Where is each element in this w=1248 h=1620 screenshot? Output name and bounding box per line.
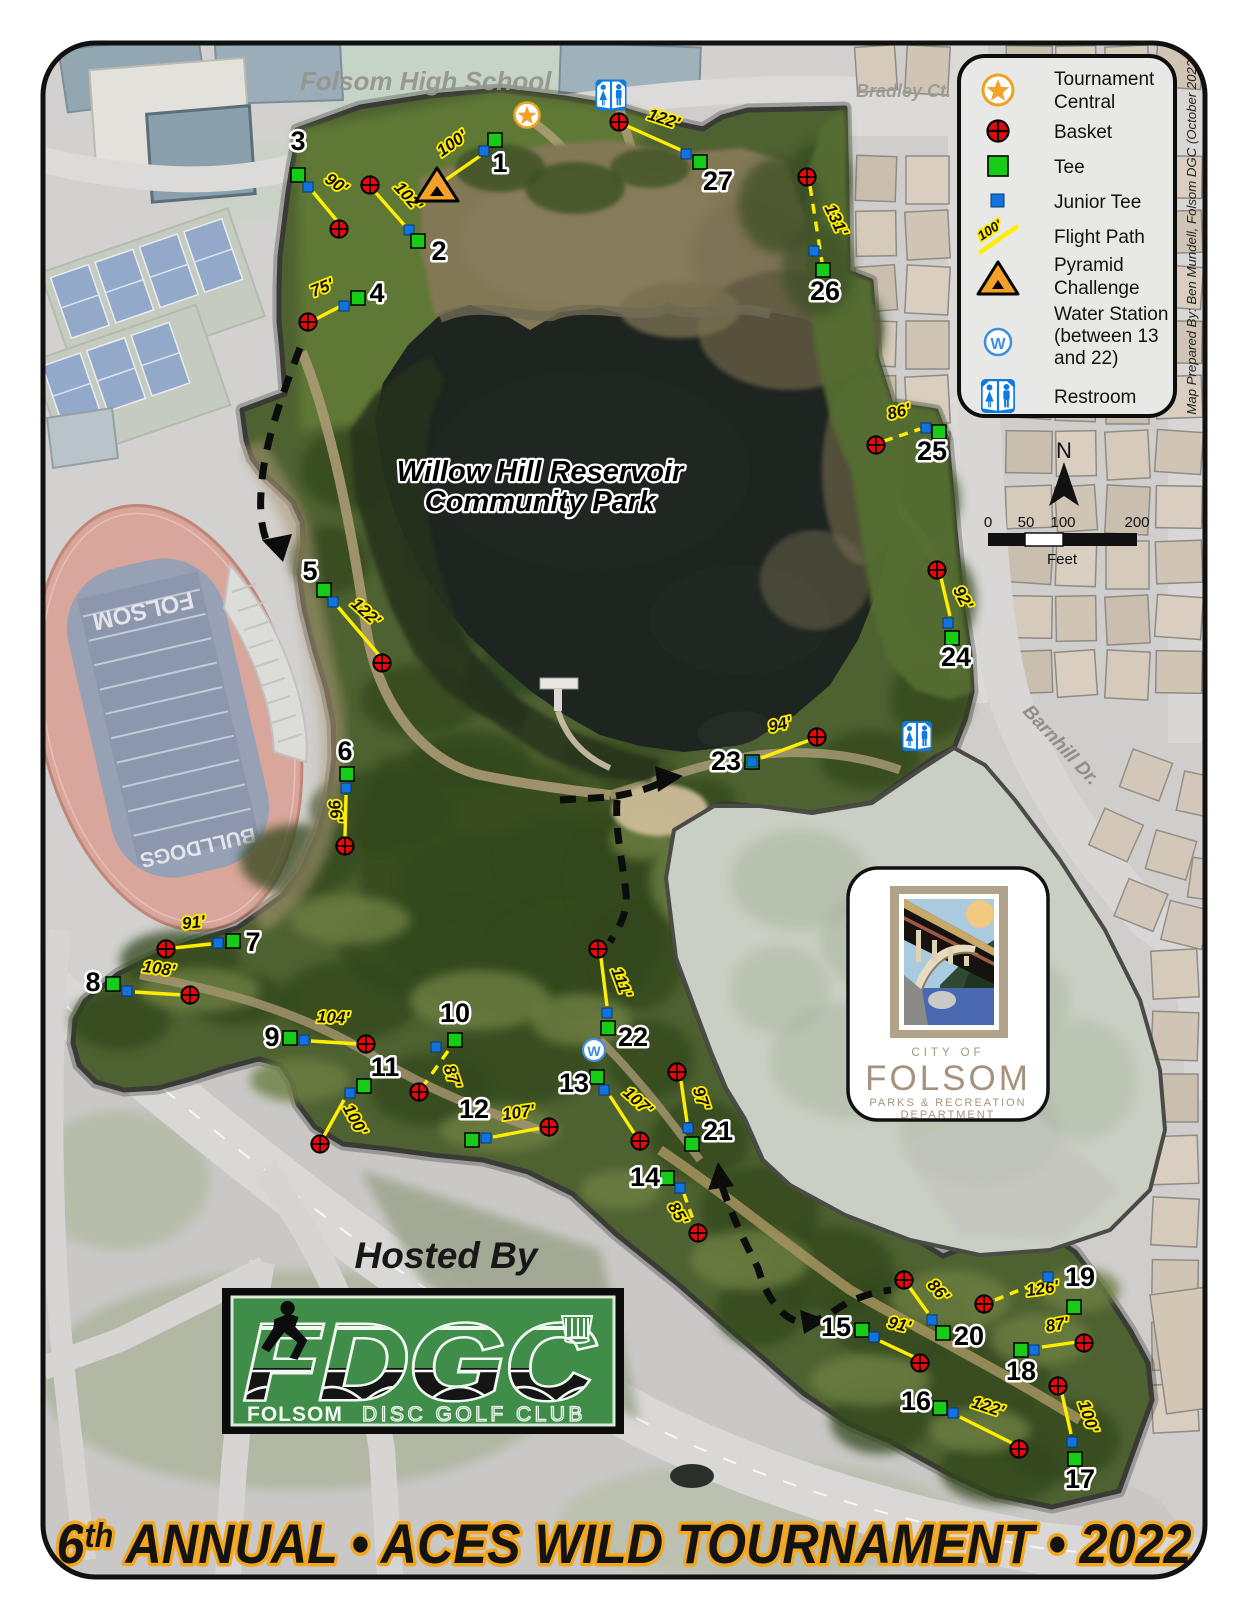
svg-text:FOLSOM: FOLSOM bbox=[865, 1059, 1031, 1098]
svg-text:Flight Path: Flight Path bbox=[1054, 227, 1145, 248]
svg-text:Restroom: Restroom bbox=[1054, 387, 1136, 408]
svg-text:5: 5 bbox=[302, 556, 317, 586]
svg-text:Feet: Feet bbox=[1047, 551, 1078, 568]
svg-text:Map Prepared By: Ben Mundell,: Map Prepared By: Ben Mundell, Folsom DGC… bbox=[1184, 55, 1199, 414]
svg-text:Junior Tee: Junior Tee bbox=[1054, 192, 1141, 213]
svg-text:91': 91' bbox=[181, 912, 207, 933]
svg-text:18: 18 bbox=[1006, 1356, 1036, 1386]
svg-text:100: 100 bbox=[1050, 514, 1075, 531]
svg-text:and 22): and 22) bbox=[1054, 348, 1118, 369]
svg-text:Folsom High School: Folsom High School bbox=[300, 66, 552, 96]
svg-text:21: 21 bbox=[703, 1116, 733, 1146]
svg-text:19: 19 bbox=[1065, 1262, 1095, 1292]
svg-text:Hosted By: Hosted By bbox=[355, 1235, 540, 1276]
svg-text:23: 23 bbox=[711, 746, 741, 776]
svg-text:Water Station: Water Station bbox=[1054, 304, 1168, 325]
svg-text:Willow Hill Reservoir: Willow Hill Reservoir bbox=[397, 456, 685, 488]
svg-text:6: 6 bbox=[337, 736, 352, 766]
svg-text:DEPARTMENT: DEPARTMENT bbox=[901, 1109, 996, 1121]
svg-text:PARKS & RECREATION: PARKS & RECREATION bbox=[869, 1097, 1026, 1109]
svg-text:Pyramid: Pyramid bbox=[1054, 255, 1124, 276]
svg-text:24: 24 bbox=[941, 642, 971, 672]
svg-text:W: W bbox=[587, 1043, 601, 1059]
svg-text:Central: Central bbox=[1054, 92, 1115, 113]
svg-text:15: 15 bbox=[821, 1312, 851, 1342]
svg-text:Community Park: Community Park bbox=[425, 486, 657, 518]
svg-text:1: 1 bbox=[492, 148, 507, 178]
svg-text:22: 22 bbox=[618, 1022, 648, 1052]
svg-text:4: 4 bbox=[369, 278, 384, 308]
svg-text:Bradley Ct.: Bradley Ct. bbox=[856, 81, 951, 101]
svg-text:10: 10 bbox=[440, 998, 470, 1028]
svg-text:N: N bbox=[1056, 438, 1072, 463]
svg-text:27: 27 bbox=[703, 166, 733, 196]
svg-text:Tee: Tee bbox=[1054, 157, 1085, 178]
svg-text:9: 9 bbox=[264, 1022, 279, 1052]
svg-text:Challenge: Challenge bbox=[1054, 278, 1140, 299]
svg-text:16: 16 bbox=[901, 1386, 931, 1416]
svg-text:W: W bbox=[990, 336, 1006, 353]
svg-text:14: 14 bbox=[630, 1162, 660, 1192]
svg-text:12: 12 bbox=[459, 1094, 489, 1124]
svg-text:17: 17 bbox=[1065, 1464, 1095, 1494]
svg-text:DISC GOLF CLUB: DISC GOLF CLUB bbox=[362, 1403, 586, 1426]
svg-text:11: 11 bbox=[371, 1052, 400, 1082]
svg-text:200: 200 bbox=[1124, 514, 1149, 531]
svg-text:2: 2 bbox=[431, 236, 446, 266]
svg-text:50: 50 bbox=[1018, 514, 1035, 531]
svg-text:8: 8 bbox=[85, 967, 100, 997]
svg-text:Basket: Basket bbox=[1054, 122, 1113, 143]
svg-text:7: 7 bbox=[245, 927, 260, 957]
svg-text:20: 20 bbox=[954, 1321, 984, 1351]
svg-text:6th ANNUAL • ACES WILD TOURNAM: 6th ANNUAL • ACES WILD TOURNAMENT • 2022 bbox=[57, 1512, 1192, 1575]
svg-text:Tournament: Tournament bbox=[1054, 69, 1155, 90]
svg-text:3: 3 bbox=[290, 126, 305, 156]
svg-text:13: 13 bbox=[559, 1068, 589, 1098]
svg-text:25: 25 bbox=[917, 436, 947, 466]
svg-text:0: 0 bbox=[984, 514, 992, 531]
svg-text:CITY OF: CITY OF bbox=[911, 1047, 984, 1059]
svg-text:104': 104' bbox=[317, 1007, 351, 1027]
svg-text:(between 13: (between 13 bbox=[1054, 326, 1159, 347]
svg-text:26: 26 bbox=[810, 276, 840, 306]
svg-text:FOLSOM: FOLSOM bbox=[247, 1403, 343, 1426]
